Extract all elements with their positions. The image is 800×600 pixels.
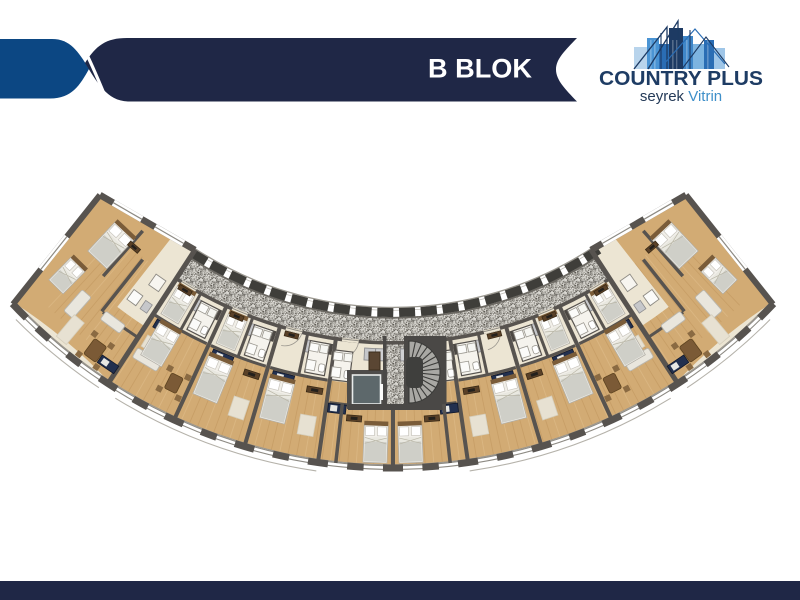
svg-text:seyrek Vitrin: seyrek Vitrin [640,88,722,105]
svg-text:COUNTRY PLUS: COUNTRY PLUS [599,67,763,90]
svg-text:B BLOK: B BLOK [428,54,532,84]
